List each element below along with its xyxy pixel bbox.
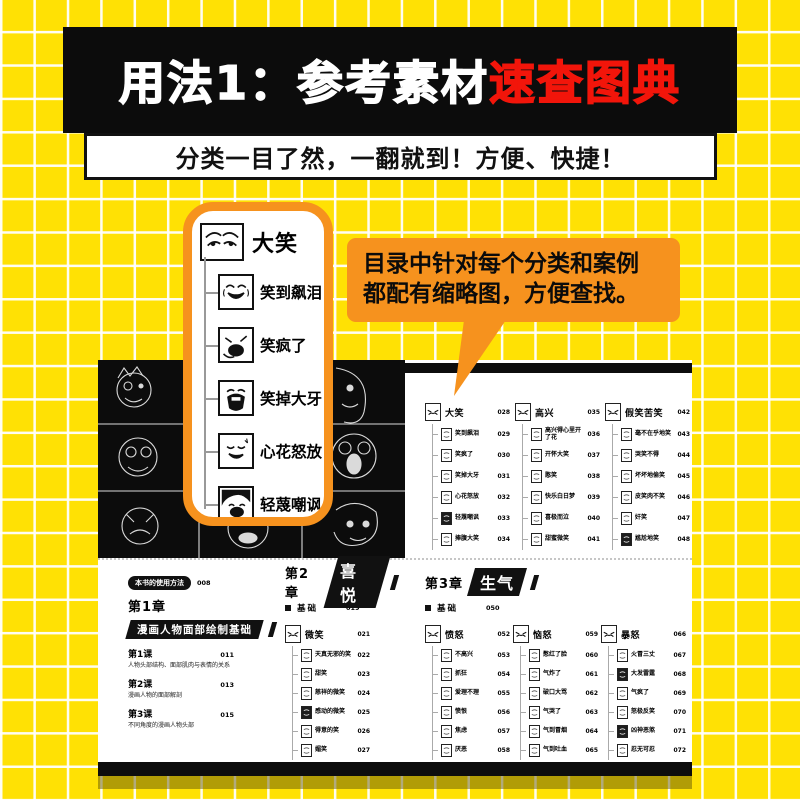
toc-item-page: 056 bbox=[497, 709, 510, 716]
toc-item: 怒极反笑070 bbox=[609, 703, 686, 722]
laugh-tears-thumb bbox=[218, 274, 254, 310]
toc-item-label: 气到冒烟 bbox=[543, 728, 582, 735]
toc-item: 甜蜜微笑041 bbox=[523, 529, 600, 550]
toc-item-page: 072 bbox=[673, 747, 686, 754]
toc-item-page: 057 bbox=[497, 728, 510, 735]
toc-item-thumb-icon bbox=[301, 706, 312, 719]
toc-item: 尴尬地笑048 bbox=[613, 529, 690, 550]
toc-category-header: 假笑苦笑042 bbox=[605, 400, 690, 424]
toc-item-thumb-icon bbox=[441, 428, 452, 441]
toc-item-thumb-icon bbox=[441, 491, 452, 504]
toc-item-page: 038 bbox=[587, 473, 600, 480]
toc-item-label: 焦虑 bbox=[455, 728, 494, 735]
toc-item-thumb-icon bbox=[621, 533, 632, 546]
toc-item: 笑掉大牙031 bbox=[433, 466, 510, 487]
toc-item-page: 039 bbox=[587, 494, 600, 501]
toc-item-page: 068 bbox=[673, 671, 686, 678]
toc-item-label: 憨笑 bbox=[545, 473, 584, 480]
toc-category-column: 假笑苦笑042毫不在乎地笑043哭笑不得044坏坏地偷笑045皮笑肉不笑046奸… bbox=[605, 400, 690, 550]
toc-item: 甜笑023 bbox=[293, 665, 370, 684]
toc-item-thumb-icon bbox=[441, 668, 452, 681]
lesson-page: 015 bbox=[220, 711, 234, 719]
toc-item-page: 025 bbox=[357, 709, 370, 716]
toc-item-thumb-icon bbox=[301, 687, 312, 700]
toc-item-label: 高兴得心里开了花 bbox=[545, 428, 584, 442]
toc-category-column: 大笑028笑到飙泪029笑疯了030笑掉大牙031心花怒放032轻蔑嘲讽033捧… bbox=[425, 400, 510, 550]
square-bullet-icon bbox=[425, 605, 431, 611]
toc-item-page: 027 bbox=[357, 747, 370, 754]
toc-item-page: 032 bbox=[497, 494, 510, 501]
basics-label: 基础 bbox=[297, 602, 318, 614]
toc-category-label: 愤怒 bbox=[445, 628, 464, 641]
callout-item-label: 笑疯了 bbox=[260, 334, 307, 356]
callout-header: 大笑 bbox=[200, 223, 324, 261]
toc-item-thumb-icon bbox=[617, 744, 628, 757]
toc-item-label: 心花怒放 bbox=[455, 494, 494, 501]
chapter3-groups: 愤怒052不高兴053抓狂054爱理不理055愤恨056焦虑057厌恶058恼怒… bbox=[425, 622, 691, 760]
category-callout-box: 大笑 笑到飙泪笑疯了笑掉大牙心花怒放轻蔑嘲讽 bbox=[183, 202, 333, 526]
toc-item-page: 055 bbox=[497, 690, 510, 697]
toc-page-bottom: 本书的使用方法 008 第1章 漫画人物面部绘制基础 第1课011人物头部结构、… bbox=[98, 560, 692, 762]
toc-item-label: 奸笑 bbox=[635, 515, 674, 522]
toc-item-thumb-icon bbox=[441, 649, 452, 662]
lesson-header: 第2课013 bbox=[128, 677, 248, 690]
toc-item-label: 气到吐血 bbox=[543, 747, 582, 754]
toc-item-page: 064 bbox=[585, 728, 598, 735]
chapter1-banner: 漫画人物面部绘制基础 bbox=[125, 620, 263, 639]
toc-item-label: 厌恶 bbox=[455, 747, 494, 754]
toc-category-page: 028 bbox=[497, 409, 510, 416]
toc-category-header: 高兴035 bbox=[515, 400, 600, 424]
toc-category-thumb-icon bbox=[425, 625, 441, 643]
toc-item-thumb-icon bbox=[529, 649, 540, 662]
toc-item-thumb-icon bbox=[617, 668, 628, 681]
callout-item-label: 笑到飙泪 bbox=[260, 281, 322, 303]
toc-item-thumb-icon bbox=[301, 725, 312, 738]
toc-category-thumb-icon bbox=[601, 625, 617, 643]
toc-item-page: 061 bbox=[585, 671, 598, 678]
toc-item-page: 031 bbox=[497, 473, 510, 480]
chapter2-section: 第2章 喜悦 基础 019 微笑021天真无邪的笑022甜笑023慈祥的微笑02… bbox=[285, 572, 397, 760]
toc-item-label: 甜笑 bbox=[315, 671, 354, 678]
toc-item: 不高兴053 bbox=[433, 646, 510, 665]
toc-item-label: 喜极而泣 bbox=[545, 515, 584, 522]
toc-item-list: 高兴得心里开了花036开怀大笑037憨笑038快乐白日梦039喜极而泣040甜蜜… bbox=[522, 424, 600, 550]
toc-item-label: 哭笑不得 bbox=[635, 452, 674, 459]
toc-top-columns: 大笑028笑到飙泪029笑疯了030笑掉大牙031心花怒放032轻蔑嘲讽033捧… bbox=[425, 400, 690, 550]
toc-item: 媚笑027 bbox=[293, 741, 370, 760]
headline-white-part: 用法1：参考素材 bbox=[119, 56, 489, 110]
toc-item-label: 爱理不理 bbox=[455, 690, 494, 697]
laugh-bloom-thumb bbox=[218, 433, 254, 469]
lesson-description: 漫画人物的面部解剖 bbox=[128, 692, 288, 699]
toc-item-label: 破口大骂 bbox=[543, 690, 582, 697]
subtitle-box: 分类一目了然，一翻就到！方便、快捷！ bbox=[84, 133, 717, 180]
toc-item-thumb-icon bbox=[301, 649, 312, 662]
toc-item-label: 怒极反笑 bbox=[631, 709, 670, 716]
toc-item-page: 040 bbox=[587, 515, 600, 522]
toc-item-label: 气炸了 bbox=[543, 671, 582, 678]
toc-item: 毫不在乎地笑043 bbox=[613, 424, 690, 445]
toc-category-label: 大笑 bbox=[445, 406, 464, 419]
toc-category-header: 微笑021 bbox=[285, 622, 370, 646]
toc-item: 得意的笑026 bbox=[293, 722, 370, 741]
toc-item-thumb-icon bbox=[441, 706, 452, 719]
banner-slash-decoration bbox=[268, 622, 277, 637]
promo-page: 用法1：参考素材速查图典 分类一目了然，一翻就到！方便、快捷！ bbox=[0, 0, 800, 800]
toc-item-thumb-icon bbox=[441, 470, 452, 483]
chapter1-section: 本书的使用方法 008 第1章 漫画人物面部绘制基础 第1课011人物头部结构、… bbox=[128, 576, 288, 730]
toc-item: 气疯了069 bbox=[609, 684, 686, 703]
toc-item: 愤恨056 bbox=[433, 703, 510, 722]
laugh-eyes-thumb-icon bbox=[200, 223, 244, 261]
toc-category-header: 愤怒052 bbox=[425, 622, 510, 646]
toc-item-label: 感动的微笑 bbox=[315, 709, 354, 716]
toc-item-page: 053 bbox=[497, 652, 510, 659]
callout-item: 轻蔑嘲讽 bbox=[218, 477, 324, 526]
toc-item-thumb-icon bbox=[441, 533, 452, 546]
toc-item-page: 070 bbox=[673, 709, 686, 716]
toc-item-label: 抓狂 bbox=[455, 671, 494, 678]
toc-item-thumb-icon bbox=[529, 744, 540, 757]
toc-item-label: 轻蔑嘲讽 bbox=[455, 515, 494, 522]
toc-item: 高兴得心里开了花036 bbox=[523, 424, 600, 445]
toc-item-page: 045 bbox=[677, 473, 690, 480]
callout-item-label: 笑掉大牙 bbox=[260, 387, 322, 409]
toc-item: 笑到飙泪029 bbox=[433, 424, 510, 445]
toc-item-label: 捧腹大笑 bbox=[455, 536, 494, 543]
callout-item-label: 心花怒放 bbox=[260, 440, 322, 462]
toc-item-list: 憋红了脸060气炸了061破口大骂062气哭了063气到冒烟064气到吐血065 bbox=[520, 646, 598, 760]
toc-item-label: 坏坏地偷笑 bbox=[635, 473, 674, 480]
toc-item-label: 大发雷霆 bbox=[631, 671, 670, 678]
toc-category-label: 微笑 bbox=[305, 628, 324, 641]
toc-item: 快乐白日梦039 bbox=[523, 487, 600, 508]
lesson-list: 第1课011人物头部结构、面部肌肉与表情的关系第2课013漫画人物的面部解剖第3… bbox=[128, 647, 288, 730]
toc-category-column: 愤怒052不高兴053抓狂054爱理不理055愤恨056焦虑057厌恶058 bbox=[425, 622, 510, 760]
toc-item-page: 071 bbox=[673, 728, 686, 735]
lesson: 第2课013漫画人物的面部解剖 bbox=[128, 677, 288, 699]
toc-category-label: 高兴 bbox=[535, 406, 554, 419]
toc-item: 厌恶058 bbox=[433, 741, 510, 760]
toc-category-column: 高兴035高兴得心里开了花036开怀大笑037憨笑038快乐白日梦039喜极而泣… bbox=[515, 400, 600, 550]
book-shadow bbox=[98, 776, 692, 789]
toc-item: 大发雷霆068 bbox=[609, 665, 686, 684]
toc-item-list: 毫不在乎地笑043哭笑不得044坏坏地偷笑045皮笑肉不笑046奸笑047尴尬地… bbox=[612, 424, 690, 550]
toc-category-column: 暴怒066火冒三丈067大发雷霆068气疯了069怒极反笑070凶神恶煞071忍… bbox=[601, 622, 686, 760]
toc-category-page: 035 bbox=[587, 409, 600, 416]
toc-item-thumb-icon bbox=[621, 470, 632, 483]
toc-category-column: 微笑021天真无邪的笑022甜笑023慈祥的微笑024感动的微笑025得意的笑0… bbox=[285, 622, 370, 760]
toc-item-thumb-icon bbox=[441, 449, 452, 462]
lesson-header: 第3课015 bbox=[128, 707, 248, 720]
toc-item-thumb-icon bbox=[441, 744, 452, 757]
toc-item: 忍无可忍072 bbox=[609, 741, 686, 760]
square-bullet-icon bbox=[285, 605, 291, 611]
toc-item: 喜极而泣040 bbox=[523, 508, 600, 529]
toc-category-header: 暴怒066 bbox=[601, 622, 686, 646]
lesson-page: 013 bbox=[220, 681, 234, 689]
toc-item: 憨笑038 bbox=[523, 466, 600, 487]
toc-item-page: 029 bbox=[497, 431, 510, 438]
toc-item-label: 气哭了 bbox=[543, 709, 582, 716]
toc-item-page: 069 bbox=[673, 690, 686, 697]
toc-item: 气到冒烟064 bbox=[521, 722, 598, 741]
chapter3-banner: 生气 bbox=[467, 568, 527, 596]
toc-item-page: 023 bbox=[357, 671, 370, 678]
toc-item-label: 甜蜜微笑 bbox=[545, 536, 584, 543]
lesson-header: 第1课011 bbox=[128, 647, 248, 660]
toc-item-page: 037 bbox=[587, 452, 600, 459]
toc-item: 奸笑047 bbox=[613, 508, 690, 529]
toc-item-page: 067 bbox=[673, 652, 686, 659]
toc-item-label: 开怀大笑 bbox=[545, 452, 584, 459]
toc-item-page: 034 bbox=[497, 536, 510, 543]
toc-item-thumb-icon bbox=[529, 725, 540, 738]
toc-category-label: 假笑苦笑 bbox=[625, 406, 663, 419]
toc-item-thumb-icon bbox=[531, 449, 542, 462]
headline-text: 用法1：参考素材速查图典 bbox=[119, 47, 681, 113]
toc-item-label: 笑掉大牙 bbox=[455, 473, 494, 480]
toc-item-thumb-icon bbox=[301, 668, 312, 681]
basics-page: 050 bbox=[486, 604, 500, 612]
bubble-tail bbox=[442, 320, 512, 398]
toc-item-thumb-icon bbox=[301, 744, 312, 757]
toc-category-thumb-icon bbox=[425, 403, 441, 421]
toc-item-thumb-icon bbox=[529, 668, 540, 681]
toc-item-thumb-icon bbox=[529, 706, 540, 719]
toc-category-label: 恼怒 bbox=[533, 628, 552, 641]
toc-item-list: 火冒三丈067大发雷霆068气疯了069怒极反笑070凶神恶煞071忍无可忍07… bbox=[608, 646, 686, 760]
banner-slash-decoration bbox=[390, 575, 399, 590]
toc-item-thumb-icon bbox=[621, 449, 632, 462]
toc-item-page: 058 bbox=[497, 747, 510, 754]
toc-category-page: 066 bbox=[673, 631, 686, 638]
speech-bubble: 目录中针对每个分类和案例 都配有缩略图，方便查找。 bbox=[347, 238, 680, 322]
toc-item: 捧腹大笑034 bbox=[433, 529, 510, 550]
toc-item-thumb-icon bbox=[441, 512, 452, 525]
toc-item-thumb-icon bbox=[531, 512, 542, 525]
toc-item-page: 054 bbox=[497, 671, 510, 678]
toc-item-page: 036 bbox=[587, 431, 600, 438]
toc-item-page: 048 bbox=[677, 536, 690, 543]
toc-item: 气哭了063 bbox=[521, 703, 598, 722]
toc-item-thumb-icon bbox=[531, 428, 542, 441]
toc-item-page: 046 bbox=[677, 494, 690, 501]
lesson-description: 人物头部结构、面部肌肉与表情的关系 bbox=[128, 662, 288, 669]
toc-item-page: 022 bbox=[357, 652, 370, 659]
toc-item-page: 043 bbox=[677, 431, 690, 438]
basics-label: 基础 bbox=[437, 602, 458, 614]
toc-item: 气炸了061 bbox=[521, 665, 598, 684]
toc-item-page: 041 bbox=[587, 536, 600, 543]
usage-badge: 本书的使用方法 bbox=[128, 576, 191, 590]
callout-item-label: 轻蔑嘲讽 bbox=[260, 493, 322, 515]
book-bottom-edge bbox=[98, 762, 692, 776]
toc-item-label: 愤恨 bbox=[455, 709, 494, 716]
headline-banner: 用法1：参考素材速查图典 bbox=[63, 27, 737, 133]
callout-category-title: 大笑 bbox=[252, 226, 298, 258]
toc-item: 抓狂054 bbox=[433, 665, 510, 684]
toc-item-label: 凶神恶煞 bbox=[631, 728, 670, 735]
toc-item-page: 060 bbox=[585, 652, 598, 659]
toc-item-thumb-icon bbox=[617, 649, 628, 662]
chapter2-banner: 喜悦 bbox=[324, 556, 391, 608]
toc-item-thumb-icon bbox=[531, 470, 542, 483]
lesson-label: 第1课 bbox=[128, 647, 152, 660]
toc-item-list: 笑到飙泪029笑疯了030笑掉大牙031心花怒放032轻蔑嘲讽033捧腹大笑03… bbox=[432, 424, 510, 550]
callout-item-list: 笑到飙泪笑疯了笑掉大牙心花怒放轻蔑嘲讽 bbox=[218, 265, 324, 526]
toc-item: 心花怒放032 bbox=[433, 487, 510, 508]
lesson-page: 011 bbox=[220, 651, 234, 659]
lesson-description: 不同角度的漫画人物头部 bbox=[128, 722, 288, 729]
subtitle-text: 分类一目了然，一翻就到！方便、快捷！ bbox=[176, 139, 626, 174]
toc-item-list: 不高兴053抓狂054爱理不理055愤恨056焦虑057厌恶058 bbox=[432, 646, 510, 760]
toc-item-thumb-icon bbox=[621, 428, 632, 441]
toc-category-page: 021 bbox=[357, 631, 370, 638]
callout-item: 笑到飙泪 bbox=[218, 265, 324, 318]
toc-item-label: 快乐白日梦 bbox=[545, 494, 584, 501]
chapter2-group: 微笑021天真无邪的笑022甜笑023慈祥的微笑024感动的微笑025得意的笑0… bbox=[285, 622, 397, 760]
toc-category-thumb-icon bbox=[605, 403, 621, 421]
headline-red-part: 速查图典 bbox=[489, 56, 681, 110]
toc-item-label: 天真无邪的笑 bbox=[315, 652, 354, 659]
toc-item-label: 笑到飙泪 bbox=[455, 431, 494, 438]
callout-item: 笑疯了 bbox=[218, 318, 324, 371]
toc-item-thumb-icon bbox=[441, 687, 452, 700]
toc-item: 轻蔑嘲讽033 bbox=[433, 508, 510, 529]
toc-item-page: 047 bbox=[677, 515, 690, 522]
toc-category-thumb-icon bbox=[513, 625, 529, 643]
toc-item-thumb-icon bbox=[531, 491, 542, 504]
toc-item: 憋红了脸060 bbox=[521, 646, 598, 665]
toc-category-page: 042 bbox=[677, 409, 690, 416]
toc-category-column: 恼怒059憋红了脸060气炸了061破口大骂062气哭了063气到冒烟064气到… bbox=[513, 622, 598, 760]
toc-item-label: 得意的笑 bbox=[315, 728, 354, 735]
bubble-line1: 目录中针对每个分类和案例 bbox=[363, 249, 680, 279]
toc-item-page: 033 bbox=[497, 515, 510, 522]
usage-badge-page: 008 bbox=[197, 579, 211, 587]
toc-item-label: 忍无可忍 bbox=[631, 747, 670, 754]
toc-item: 焦虑057 bbox=[433, 722, 510, 741]
toc-category-header: 大笑028 bbox=[425, 400, 510, 424]
chapter3-number: 第3章 bbox=[425, 573, 463, 592]
toc-item-thumb-icon bbox=[441, 725, 452, 738]
toc-category-page: 052 bbox=[497, 631, 510, 638]
toc-item: 皮笑肉不笑046 bbox=[613, 487, 690, 508]
toc-item-thumb-icon bbox=[617, 706, 628, 719]
toc-item-label: 皮笑肉不笑 bbox=[635, 494, 674, 501]
toc-item-page: 024 bbox=[357, 690, 370, 697]
toc-item-page: 044 bbox=[677, 452, 690, 459]
toc-category-page: 059 bbox=[585, 631, 598, 638]
toc-item-thumb-icon bbox=[621, 512, 632, 525]
toc-item-list: 天真无邪的笑022甜笑023慈祥的微笑024感动的微笑025得意的笑026媚笑0… bbox=[292, 646, 370, 760]
toc-category-thumb-icon bbox=[285, 625, 301, 643]
toc-item: 开怀大笑037 bbox=[523, 445, 600, 466]
lesson: 第3课015不同角度的漫画人物头部 bbox=[128, 707, 288, 729]
toc-category-header: 恼怒059 bbox=[513, 622, 598, 646]
toc-item-label: 慈祥的微笑 bbox=[315, 690, 354, 697]
toc-item: 凶神恶煞071 bbox=[609, 722, 686, 741]
toc-item-label: 气疯了 bbox=[631, 690, 670, 697]
toc-item: 笑疯了030 bbox=[433, 445, 510, 466]
toc-item-thumb-icon bbox=[529, 687, 540, 700]
toc-item-page: 062 bbox=[585, 690, 598, 697]
toc-item-page: 030 bbox=[497, 452, 510, 459]
toc-item-label: 尴尬地笑 bbox=[635, 536, 674, 543]
toc-item-thumb-icon bbox=[621, 491, 632, 504]
toc-item-label: 媚笑 bbox=[315, 747, 354, 754]
toc-item-page: 065 bbox=[585, 747, 598, 754]
toc-category-thumb-icon bbox=[515, 403, 531, 421]
chapter3-section: 第3章 生气 基础 050 愤怒052不高兴053抓狂054爱理不理055愤恨0… bbox=[425, 572, 691, 760]
toc-item-page: 026 bbox=[357, 728, 370, 735]
sneer-face-thumb bbox=[218, 486, 254, 522]
toc-item-label: 憋红了脸 bbox=[543, 652, 582, 659]
toc-item: 坏坏地偷笑045 bbox=[613, 466, 690, 487]
toc-item: 火冒三丈067 bbox=[609, 646, 686, 665]
toc-item-page: 063 bbox=[585, 709, 598, 716]
toc-item-thumb-icon bbox=[531, 533, 542, 546]
toc-item-label: 毫不在乎地笑 bbox=[635, 431, 674, 438]
lesson-label: 第3课 bbox=[128, 707, 152, 720]
lesson: 第1课011人物头部结构、面部肌肉与表情的关系 bbox=[128, 647, 288, 669]
toc-item: 哭笑不得044 bbox=[613, 445, 690, 466]
callout-item: 笑掉大牙 bbox=[218, 371, 324, 424]
toc-item-thumb-icon bbox=[617, 725, 628, 738]
toc-item-thumb-icon bbox=[617, 687, 628, 700]
toc-item-label: 火冒三丈 bbox=[631, 652, 670, 659]
toc-item-label: 笑疯了 bbox=[455, 452, 494, 459]
toc-item: 慈祥的微笑024 bbox=[293, 684, 370, 703]
banner-slash-decoration bbox=[530, 575, 539, 590]
toc-item: 破口大骂062 bbox=[521, 684, 598, 703]
chapter1-number: 第1章 bbox=[128, 596, 288, 615]
chapter2-number: 第2章 bbox=[285, 563, 323, 601]
chapter3-basics-row: 基础 050 bbox=[425, 602, 691, 614]
callout-item: 心花怒放 bbox=[218, 424, 324, 477]
toc-item: 天真无邪的笑022 bbox=[293, 646, 370, 665]
toc-category-label: 暴怒 bbox=[621, 628, 640, 641]
lesson-label: 第2课 bbox=[128, 677, 152, 690]
toc-item-label: 不高兴 bbox=[455, 652, 494, 659]
laugh-crazy-thumb bbox=[218, 327, 254, 363]
toc-item: 爱理不理055 bbox=[433, 684, 510, 703]
bubble-line2: 都配有缩略图，方便查找。 bbox=[363, 279, 680, 309]
laugh-big-mouth-thumb bbox=[218, 380, 254, 416]
toc-item: 感动的微笑025 bbox=[293, 703, 370, 722]
toc-item: 气到吐血065 bbox=[521, 741, 598, 760]
